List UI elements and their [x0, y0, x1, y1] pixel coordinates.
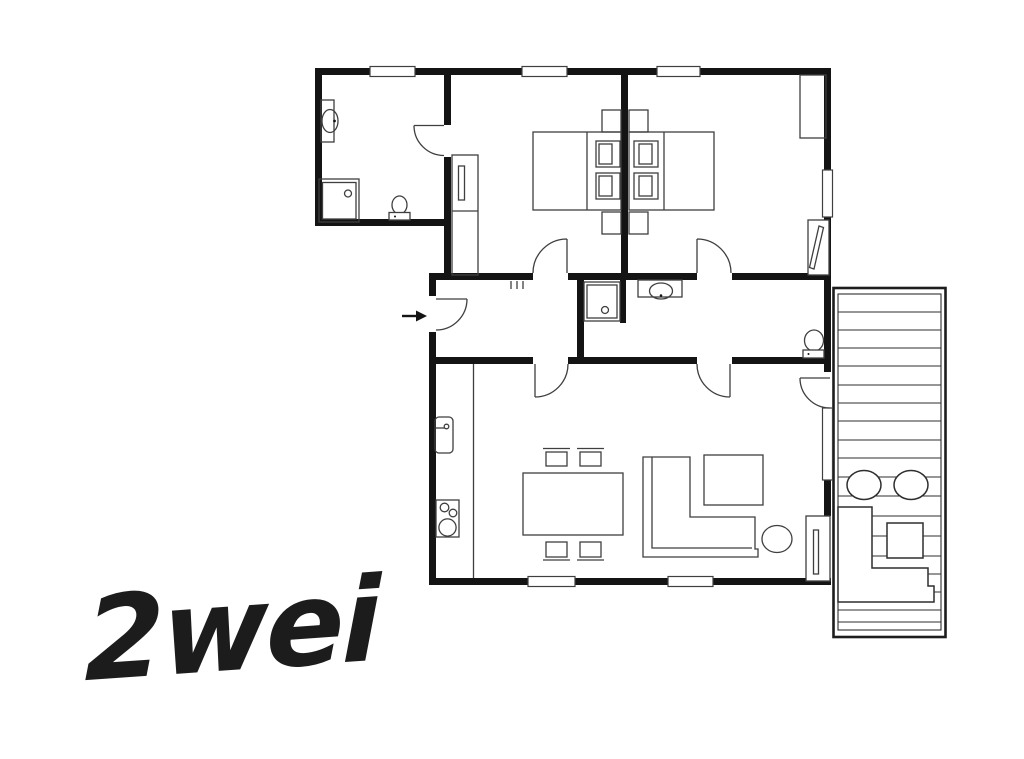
burner	[440, 503, 449, 512]
toilet-tank	[389, 213, 410, 221]
wall	[621, 75, 628, 277]
wall	[577, 277, 584, 364]
wall	[568, 357, 697, 364]
wall	[429, 332, 436, 585]
basin-drain	[660, 294, 663, 297]
shower-tray-inner	[587, 285, 617, 318]
entrance-arrow	[402, 311, 427, 322]
wall	[824, 480, 831, 516]
shower-tray	[584, 282, 620, 321]
door-swing	[697, 239, 731, 273]
wall	[429, 357, 533, 364]
toilet-bowl	[805, 330, 824, 351]
pillow-inner	[599, 144, 612, 164]
floor-plan-page: 2wei	[0, 0, 1024, 759]
window	[522, 67, 567, 77]
side-table	[762, 526, 792, 553]
pillow	[634, 141, 658, 167]
shower-drain	[345, 190, 352, 197]
window	[823, 170, 833, 217]
window	[528, 577, 575, 587]
wall	[429, 273, 533, 280]
bedroom-left	[452, 110, 621, 275]
toilet-flush	[394, 216, 396, 218]
toilet-tank	[803, 350, 824, 358]
wall	[429, 273, 436, 296]
living-room	[435, 364, 830, 581]
door-swing	[436, 299, 467, 330]
chair	[546, 452, 567, 466]
shower-tray	[319, 179, 359, 222]
pillow-inner	[639, 144, 652, 164]
fridge-knob	[444, 424, 449, 429]
door-swing	[535, 364, 568, 397]
wall	[429, 578, 831, 585]
window	[823, 408, 833, 480]
toilet-flush	[808, 353, 810, 355]
chair	[580, 452, 601, 466]
fridge	[435, 417, 453, 453]
wall	[824, 364, 831, 372]
burner	[449, 509, 457, 517]
wall	[444, 157, 451, 280]
toilet-bowl	[392, 196, 407, 214]
bathroom	[319, 100, 410, 222]
window	[657, 67, 700, 77]
lounge-chair	[894, 471, 928, 500]
terrace	[834, 288, 946, 637]
window	[370, 67, 415, 77]
nightstand	[602, 110, 621, 132]
shower-drain	[602, 307, 609, 314]
wardrobe	[800, 75, 826, 138]
pillow-inner	[639, 176, 652, 196]
chair	[580, 542, 601, 557]
nightstand	[629, 212, 648, 234]
chair	[546, 542, 567, 557]
wall	[824, 277, 831, 364]
pillow	[634, 173, 658, 199]
nightstand	[602, 212, 621, 234]
dining-table	[523, 473, 623, 535]
dining-chairs	[543, 449, 604, 561]
wash-basin	[321, 100, 334, 142]
coat-hooks	[511, 281, 523, 289]
basin-drain	[333, 120, 336, 123]
door-swing	[533, 239, 567, 273]
corner-sofa	[643, 457, 758, 557]
shower-tray-inner	[323, 183, 357, 220]
plan-title: 2wei	[84, 555, 403, 705]
door-swing	[414, 126, 444, 156]
bedroom-right	[629, 75, 829, 275]
wall	[620, 280, 626, 323]
door-swing	[800, 378, 830, 408]
outdoor-table	[887, 523, 923, 558]
wardrobe-door	[459, 166, 465, 200]
lounge-chair	[847, 471, 881, 500]
sink-basin	[439, 519, 456, 536]
nightstand	[629, 110, 648, 132]
wall	[568, 273, 697, 280]
wall	[444, 75, 451, 125]
shower-room	[584, 280, 824, 358]
coffee-table	[704, 455, 763, 505]
wall	[824, 75, 831, 170]
door-swing	[697, 364, 730, 397]
window	[668, 577, 713, 587]
pillow-inner	[599, 176, 612, 196]
walls	[315, 68, 831, 585]
